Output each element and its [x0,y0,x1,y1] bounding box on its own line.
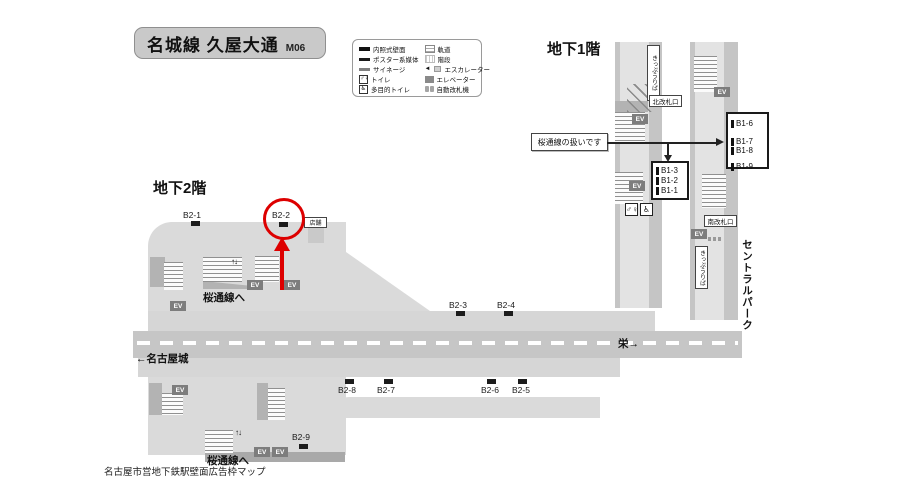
b1-north-gate-label: 北改札口 [649,95,682,107]
ad-bar-icon [731,120,734,128]
legend-item-track: 軌道 [425,44,490,54]
highlight-arrow-stem [280,250,284,290]
ad-bar-icon [731,163,734,171]
b2-track-band [133,331,742,358]
ad-position-b1-7: B1-7 [731,137,764,146]
b2-stairs-lower-middle [268,388,285,420]
legend-item-ticket-gate: 自動改札機 [425,84,490,94]
legend-item-backlit-wall: 内照式壁面 [359,44,419,54]
ad-tick-b2-3 [456,311,465,316]
b2-escalator-arrows-upper: ↑↓ [231,257,237,266]
b2-track-centerline [137,341,738,345]
ticket-gate-icon [425,86,434,92]
b2-platform-lower [138,358,620,377]
note-arrow-right-head [716,138,724,146]
escalator-icon-box [434,66,441,72]
b2-stairwell-dark [257,383,268,420]
ad-tick-b2-8 [345,379,354,384]
escalator-icon: ◄ [425,66,431,72]
ad-bar-icon [656,187,659,195]
ad-position-b1-1: B1-1 [656,186,684,195]
toilet-icon: ♂♀ [359,75,368,84]
b1-sakuradori-note: 桜通線の扱いです [531,133,608,151]
ad-tick-b2-7 [384,379,393,384]
b2-upper-concourse-diagonal [346,252,430,311]
station-ad-map: 名城線 久屋大通 M06 内照式壁面 ポスター系媒体 サイネージ ♂♀ トイレ … [0,0,919,491]
legend-item-multi-toilet: ♿ 多目的トイレ [359,84,419,94]
b1-ad-box-right: B1-6 B1-7 B1-8 B1-9 [726,112,769,169]
b2-floor-label: 地下2階 [153,177,206,198]
highlight-arrow-head [274,237,290,251]
b2-elevator-1: EV [170,301,186,311]
note-arrow-line [607,142,717,144]
ad-bar-icon [731,147,734,155]
note-arrow-down-head [664,155,672,162]
b2-elevator-3: EV [284,280,300,290]
ad-position-b2-6: B2-6 [481,385,499,395]
b1-ad-box-left: B1-3 B1-2 B1-1 [651,161,689,200]
legend-box: 内照式壁面 ポスター系媒体 サイネージ ♂♀ トイレ ♿ 多目的トイレ 軌 [352,39,482,97]
b2-stairs-lower-bottom [205,430,233,453]
legend-item-toilet: ♂♀ トイレ [359,74,419,84]
b2-stairs-upper-right [255,256,279,282]
station-title: 名城線 久屋大通 [147,31,279,56]
b2-store-block [308,228,324,243]
b1-south-gate-label: 南改札口 [704,215,737,227]
ad-position-b2-9: B2-9 [292,432,310,442]
multi-toilet-icon: ♿ [640,203,653,216]
station-title-badge: 名城線 久屋大通 M06 [134,27,326,59]
station-code: M06 [286,43,305,54]
elevator-icon [425,76,434,83]
ad-bar-icon [656,167,659,175]
multi-toilet-icon: ♿ [359,85,368,94]
ad-position-b2-7: B2-7 [377,385,395,395]
ad-position-b1-9: B1-9 [731,162,764,171]
track-icon [425,45,435,53]
ad-position-b1-6: B1-6 [731,119,764,128]
ad-tick-b2-9 [299,444,308,449]
b1-elevator-3: EV [714,87,730,97]
ad-position-b1-8: B1-8 [731,146,764,155]
highlight-circle-b2-2 [263,198,305,240]
b2-to-sakuradori-upper: 桜通線へ [203,290,245,305]
b2-wedge-upper-left [150,257,165,287]
legend-item-stairs: 階段 [425,54,490,64]
b2-elevator-4: EV [172,385,188,395]
direction-nagoya-castle: ←名古屋城 [136,351,189,366]
legend-item-elevator: エレベーター [425,74,490,84]
backlit-wall-icon [359,47,370,51]
b1-elevator-4: EV [691,229,707,239]
legend-col-right: 軌道 階段 ◄ エスカレーター エレベーター 自動改札機 [425,44,490,94]
ad-position-b2-1: B2-1 [183,210,201,220]
ad-position-b2-4: B2-4 [497,300,515,310]
ad-tick-b2-6 [487,379,496,384]
b2-platform-upper [148,311,655,332]
ad-bar-icon [656,177,659,185]
toilet-icon: ♂♀ [625,203,638,216]
legend-item-signage: サイネージ [359,64,419,74]
central-park-label: セントラルパーク [740,239,755,331]
ad-tick-b2-1 [191,221,200,226]
b2-store-label: 店舗 [304,217,327,228]
ad-tick-b2-5 [518,379,527,384]
signage-icon [359,68,370,71]
b1-stairs-right-2 [702,174,726,208]
ad-bar-icon [731,138,734,146]
legend-col-left: 内照式壁面 ポスター系媒体 サイネージ ♂♀ トイレ ♿ 多目的トイレ [359,44,419,94]
stairs-icon [425,55,435,63]
b2-elevator-5: EV [254,447,270,457]
ad-tick-b2-4 [504,311,513,316]
note-arrow-branch [667,142,669,155]
legend-item-escalator: ◄ エスカレーター [425,64,490,74]
b2-wedge-lower-left [149,383,162,415]
b2-lower-concourse-arm [335,397,600,418]
b1-floor-label: 地下1階 [547,38,600,59]
b2-elevator-2: EV [247,280,263,290]
b1-elevator-2: EV [629,181,645,191]
ad-position-b1-2: B1-2 [656,176,684,185]
ad-position-b2-8: B2-8 [338,385,356,395]
b2-stairs-lower-left [162,393,183,415]
b1-ticket-office-left-label: きっぷうりば [647,45,660,101]
b1-elevator-1: EV [632,114,648,124]
direction-sakae: 栄→ [618,336,639,351]
legend-item-poster-media: ポスター系媒体 [359,54,419,64]
b1-south-ticket-gates [708,237,721,241]
b1-toilets: ♂♀ ♿ [625,203,653,216]
poster-media-icon [359,58,370,61]
b2-escalator-arrows-lower: ↑↓ [235,428,241,437]
b2-stairs-upper-left [164,262,183,290]
map-caption: 名古屋市営地下鉄駅壁面広告枠マップ [104,464,266,478]
b1-ticket-office-right-label: きっぷうりば [695,246,708,289]
ad-position-b1-3: B1-3 [656,166,684,175]
ad-position-b2-5: B2-5 [512,385,530,395]
b2-elevator-6: EV [272,447,288,457]
ad-position-b2-3: B2-3 [449,300,467,310]
